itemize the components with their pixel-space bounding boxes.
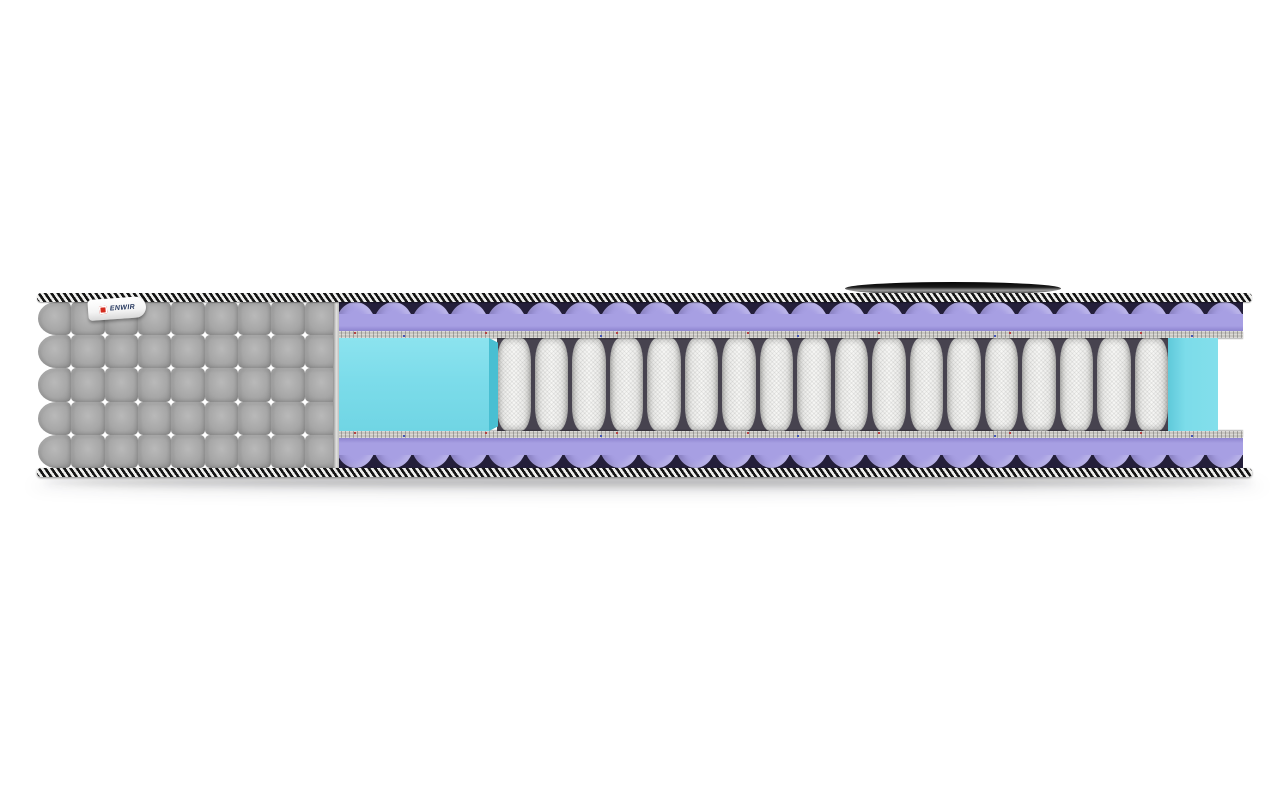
foam-layer-bottom [337,438,1243,455]
pocket-spring [685,338,719,431]
quilt-cell [205,368,238,401]
mattress-cross-section-image: ENWIR [0,0,1280,800]
pocket-spring [497,338,531,431]
pocket-spring [722,338,756,431]
edge-tape-top [37,293,1252,302]
foam-layer-top [337,314,1243,331]
quilt-cell [271,435,304,468]
quilt-cell [205,435,238,468]
quilt-cell [271,402,304,435]
brand-tag: ENWIR [87,296,146,321]
brand-logo-icon [99,305,108,314]
quilt-cell [238,402,271,435]
quilt-cell [171,335,204,368]
quilt-cell [38,302,71,335]
pocket-spring [835,338,869,431]
quilt-cell [205,402,238,435]
quilt-cell [38,435,71,468]
pocket-spring-block [497,338,1168,431]
quilt-cell [71,402,104,435]
pocket-spring [535,338,569,431]
quilt-cell [71,435,104,468]
quilt-cell [38,402,71,435]
quilt-cell [238,435,271,468]
pocket-spring [872,338,906,431]
quilt-cell [138,402,171,435]
pocket-spring [572,338,606,431]
perimeter-foam-box-left-side-face [489,338,498,431]
quilt-cell [105,402,138,435]
quilt-cell [105,335,138,368]
quilt-cell [271,335,304,368]
quilt-cell [205,302,238,335]
felt-pad-top [337,331,1243,338]
perimeter-foam-box-right [1168,338,1218,431]
quilt-cell [205,335,238,368]
quilt-cell [138,435,171,468]
quilt-cell [105,368,138,401]
pocket-spring [947,338,981,431]
pocket-spring [1135,338,1169,431]
quilt-cell [71,335,104,368]
quilt-cell [238,302,271,335]
pocket-spring [1060,338,1094,431]
pocket-spring [797,338,831,431]
quilt-cell [238,335,271,368]
pocket-spring [610,338,644,431]
quilt-cell [38,368,71,401]
quilt-cell [171,402,204,435]
quilt-cell [105,435,138,468]
quilted-fabric-cover [38,302,338,468]
quilt-cell [171,302,204,335]
quilt-cell [271,302,304,335]
edge-tape-bottom [37,468,1252,477]
brand-label: ENWIR [110,304,136,313]
quilt-cell [171,435,204,468]
quilt-cell [71,368,104,401]
pocket-spring [760,338,794,431]
quilt-cell [271,368,304,401]
quilt-cell [171,368,204,401]
cover-cut-edge [333,302,339,468]
quilt-cell [138,335,171,368]
pocket-spring [647,338,681,431]
ground-shadow [44,477,1252,486]
felt-pad-bottom [337,431,1243,438]
pocket-spring [1022,338,1056,431]
pocket-spring [910,338,944,431]
quilt-cell [138,368,171,401]
quilt-cell [238,368,271,401]
pocket-spring [985,338,1019,431]
pocket-spring [1097,338,1131,431]
quilt-cell [38,335,71,368]
perimeter-foam-box-left [337,338,489,431]
